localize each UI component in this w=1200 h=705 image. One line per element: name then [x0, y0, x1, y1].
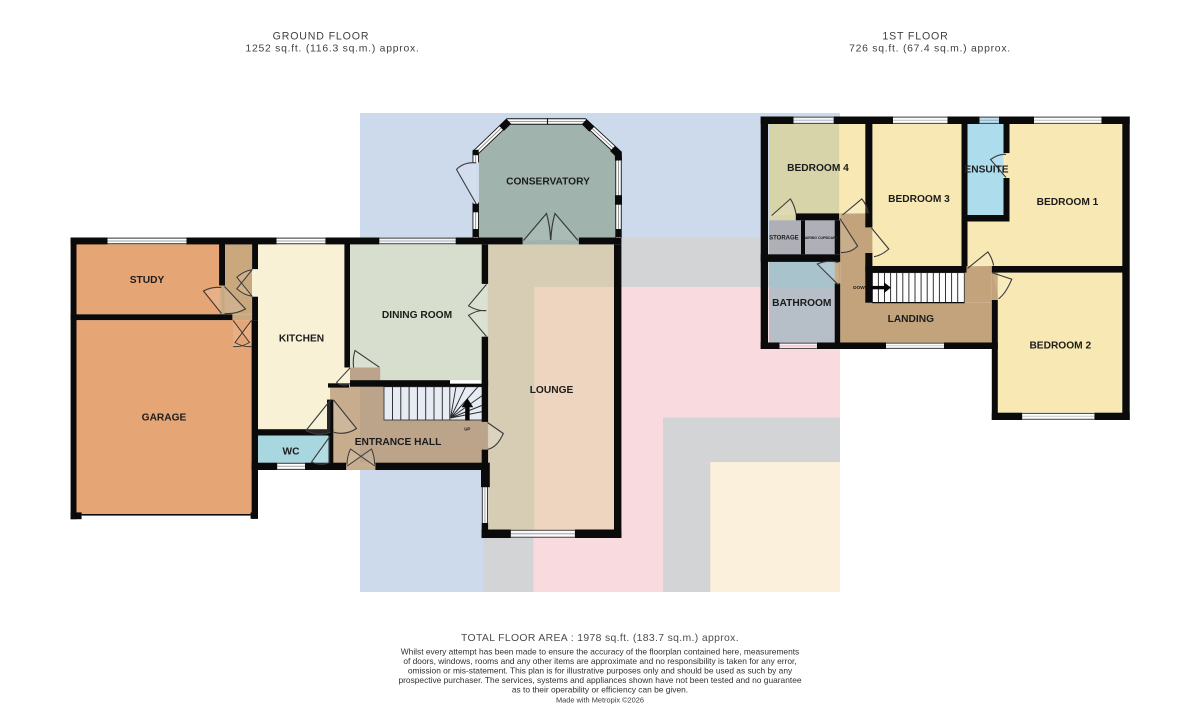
svg-text:Whilst every attempt has been: Whilst every attempt has been made to en… [401, 646, 800, 656]
svg-text:GROUND FLOOR: GROUND FLOOR [273, 31, 370, 43]
svg-text:of doors, windows, rooms and a: of doors, windows, rooms and any other i… [403, 656, 796, 666]
svg-text:BEDROOM 2: BEDROOM 2 [1029, 340, 1091, 351]
svg-text:STORAGE: STORAGE [769, 236, 799, 242]
svg-text:ENSUITE: ENSUITE [964, 165, 1008, 176]
svg-text:KITCHEN: KITCHEN [279, 334, 324, 345]
svg-text:LOUNGE: LOUNGE [530, 385, 574, 396]
svg-text:726 sq.ft. (67.4 sq.m.) approx: 726 sq.ft. (67.4 sq.m.) approx. [849, 44, 1011, 55]
svg-text:BEDROOM 1: BEDROOM 1 [1037, 197, 1099, 208]
svg-text:TOTAL FLOOR AREA : 1978 sq.ft.: TOTAL FLOOR AREA : 1978 sq.ft. (183.7 sq… [461, 633, 739, 644]
svg-text:STUDY: STUDY [130, 275, 165, 286]
svg-text:CONSERVATORY: CONSERVATORY [506, 176, 590, 187]
svg-text:1ST FLOOR: 1ST FLOOR [882, 31, 948, 43]
svg-text:ENTRANCE HALL: ENTRANCE HALL [355, 437, 442, 448]
svg-text:BEDROOM 4: BEDROOM 4 [787, 163, 849, 174]
svg-text:DINING ROOM: DINING ROOM [382, 310, 452, 321]
svg-text:omission or mis-statement. Thi: omission or mis-statement. This plan is … [408, 666, 793, 676]
svg-text:UP: UP [464, 427, 470, 432]
svg-text:1252 sq.ft. (116.3 sq.m.) appr: 1252 sq.ft. (116.3 sq.m.) approx. [245, 44, 419, 55]
svg-text:BEDROOM 3: BEDROOM 3 [888, 194, 950, 205]
svg-text:prospective purchaser. The ser: prospective purchaser. The services, sys… [398, 675, 801, 685]
svg-text:Made with Metropix ©2026: Made with Metropix ©2026 [556, 695, 644, 704]
svg-text:BATHROOM: BATHROOM [772, 298, 831, 309]
svg-text:GARAGE: GARAGE [142, 413, 187, 424]
svg-text:AIRING CUPBOARD: AIRING CUPBOARD [805, 236, 839, 240]
svg-text:as to their operability or eff: as to their operability or efficiency ca… [512, 685, 688, 695]
svg-text:LANDING: LANDING [888, 314, 934, 325]
svg-text:WC: WC [283, 447, 301, 458]
